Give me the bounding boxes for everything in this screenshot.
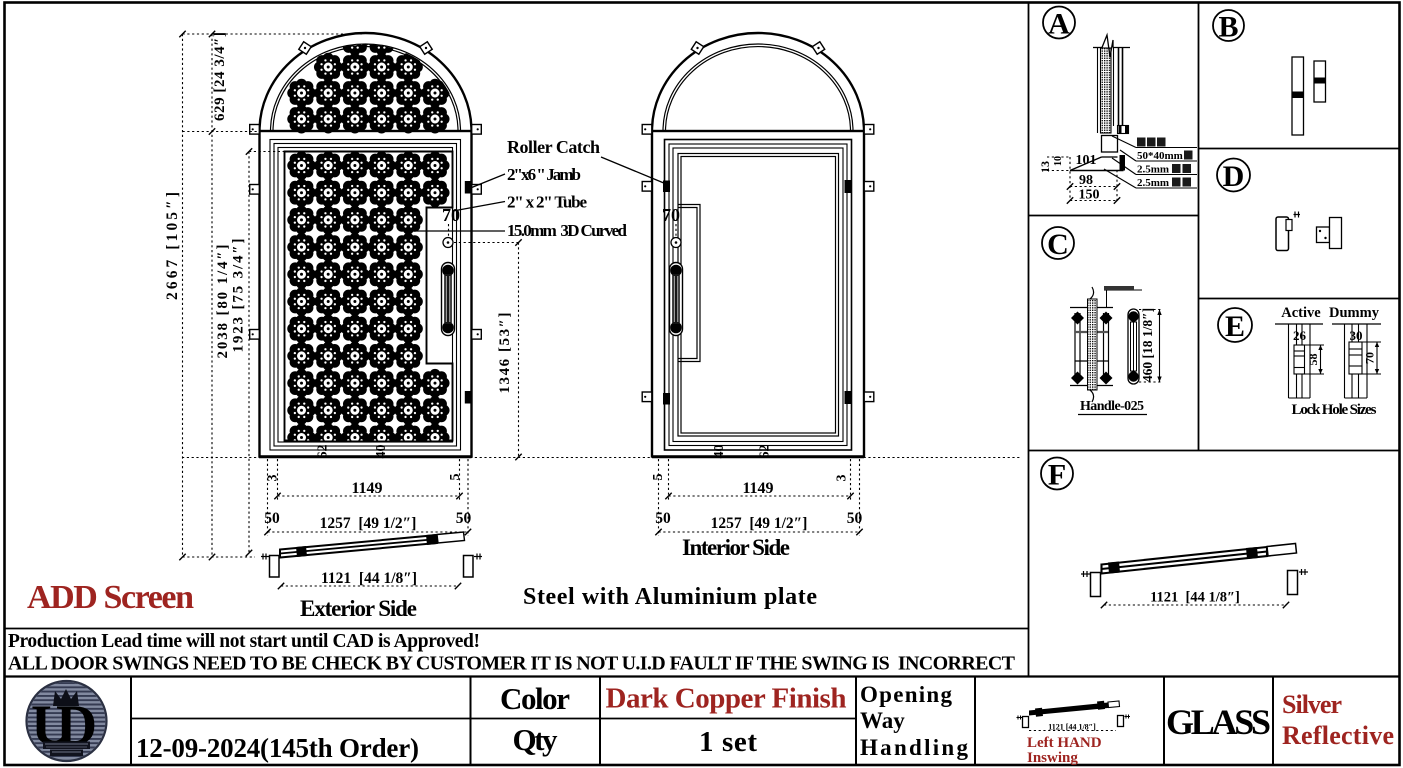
svg-text:460 [18 1/8″]: 460 [18 1/8″] bbox=[1140, 308, 1155, 382]
svg-text:2667 [105″]: 2667 [105″] bbox=[164, 192, 181, 300]
svg-text:Color: Color bbox=[500, 681, 570, 716]
svg-text:Left HAND: Left HAND bbox=[1027, 735, 1102, 751]
svg-text:Active: Active bbox=[1281, 305, 1321, 321]
svg-text:Handling: Handling bbox=[860, 735, 969, 760]
svg-text:50: 50 bbox=[847, 510, 863, 527]
svg-text:1149: 1149 bbox=[742, 480, 773, 497]
svg-text:1 set: 1 set bbox=[699, 726, 757, 758]
svg-text:13: 13 bbox=[1038, 161, 1052, 173]
svg-text:Silver: Silver bbox=[1282, 690, 1342, 719]
svg-text:Roller Catch: Roller Catch bbox=[507, 137, 600, 157]
svg-text:15.0mm 3D Curved: 15.0mm 3D Curved bbox=[507, 221, 628, 240]
svg-text:1121 [44 1/8″]: 1121 [44 1/8″] bbox=[1048, 723, 1096, 732]
svg-text:1346 [53″]: 1346 [53″] bbox=[497, 313, 513, 394]
svg-text:1923 [75 3/4″]: 1923 [75 3/4″] bbox=[231, 239, 247, 353]
svg-text:98: 98 bbox=[1079, 173, 1093, 188]
svg-text:50*40mm: 50*40mm bbox=[1137, 150, 1183, 162]
svg-text:E: E bbox=[1225, 310, 1245, 343]
svg-text:5: 5 bbox=[448, 474, 463, 481]
svg-text:12-09-2024(145th Order): 12-09-2024(145th Order) bbox=[136, 733, 419, 763]
svg-text:3: 3 bbox=[266, 475, 281, 482]
svg-text:F: F bbox=[1048, 458, 1066, 491]
svg-text:Qty: Qty bbox=[513, 722, 559, 757]
svg-text:629 [24 3/4″]: 629 [24 3/4″] bbox=[212, 32, 228, 121]
svg-text:Lock Hole Sizes: Lock Hole Sizes bbox=[1292, 402, 1377, 418]
svg-text:70: 70 bbox=[442, 205, 460, 225]
svg-text:50: 50 bbox=[456, 510, 472, 527]
svg-text:10: 10 bbox=[1053, 156, 1064, 166]
svg-text:70: 70 bbox=[662, 205, 680, 225]
svg-text:5: 5 bbox=[651, 474, 666, 481]
svg-text:Interior Side: Interior Side bbox=[682, 535, 790, 560]
svg-text:30: 30 bbox=[1350, 328, 1363, 343]
svg-text:40: 40 bbox=[374, 445, 389, 459]
svg-text:62: 62 bbox=[316, 445, 331, 459]
svg-text:A: A bbox=[1048, 7, 1070, 40]
svg-text:Production Lead time will not: Production Lead time will not start unti… bbox=[8, 631, 480, 652]
svg-text:1257 [49 1/2″]: 1257 [49 1/2″] bbox=[320, 515, 417, 532]
svg-text:GLASS: GLASS bbox=[1166, 702, 1271, 742]
svg-text:101: 101 bbox=[1076, 153, 1097, 168]
svg-text:Steel with Aluminium plate: Steel with Aluminium plate bbox=[523, 584, 817, 610]
svg-text:2" x 2" Tube: 2" x 2" Tube bbox=[507, 193, 587, 212]
svg-text:Way: Way bbox=[860, 708, 905, 733]
svg-text:50: 50 bbox=[655, 510, 671, 527]
svg-text:Handle-025: Handle-025 bbox=[1080, 399, 1144, 414]
svg-text:1257 [49 1/2″]: 1257 [49 1/2″] bbox=[711, 515, 808, 532]
svg-text:D: D bbox=[1223, 160, 1245, 193]
svg-text:2038 [80 1/4″]: 2038 [80 1/4″] bbox=[215, 245, 231, 359]
svg-text:Dark Copper Finish: Dark Copper Finish bbox=[606, 683, 847, 715]
svg-text:58: 58 bbox=[1306, 354, 1320, 366]
svg-text:150: 150 bbox=[1079, 188, 1100, 203]
svg-text:ALL DOOR SWINGS NEED TO BE CHE: ALL DOOR SWINGS NEED TO BE CHECK BY CUST… bbox=[8, 653, 1016, 675]
svg-text:Dummy: Dummy bbox=[1329, 305, 1380, 321]
svg-text:3: 3 bbox=[835, 475, 850, 482]
svg-text:70: 70 bbox=[1363, 352, 1377, 364]
svg-text:2.5mm: 2.5mm bbox=[1137, 177, 1169, 189]
svg-text:50: 50 bbox=[264, 510, 280, 527]
svg-text:2"x6 " Jamb: 2"x6 " Jamb bbox=[507, 165, 581, 184]
svg-text:1121 [44 1/8″]: 1121 [44 1/8″] bbox=[321, 570, 417, 587]
svg-text:26: 26 bbox=[1293, 328, 1307, 343]
svg-text:62: 62 bbox=[758, 445, 773, 459]
svg-text:40: 40 bbox=[712, 445, 727, 459]
svg-text:1149: 1149 bbox=[351, 480, 382, 497]
svg-text:Opening: Opening bbox=[860, 682, 953, 707]
svg-text:Reflective: Reflective bbox=[1282, 721, 1394, 750]
svg-text:B: B bbox=[1218, 10, 1238, 43]
svg-text:C: C bbox=[1047, 228, 1069, 261]
svg-text:Exterior Side: Exterior Side bbox=[300, 596, 417, 621]
svg-text:Inswing: Inswing bbox=[1027, 750, 1078, 766]
svg-text:2.5mm: 2.5mm bbox=[1137, 164, 1169, 176]
svg-text:1121 [44 1/8″]: 1121 [44 1/8″] bbox=[1150, 590, 1240, 606]
svg-text:ADD Screen: ADD Screen bbox=[27, 579, 194, 616]
